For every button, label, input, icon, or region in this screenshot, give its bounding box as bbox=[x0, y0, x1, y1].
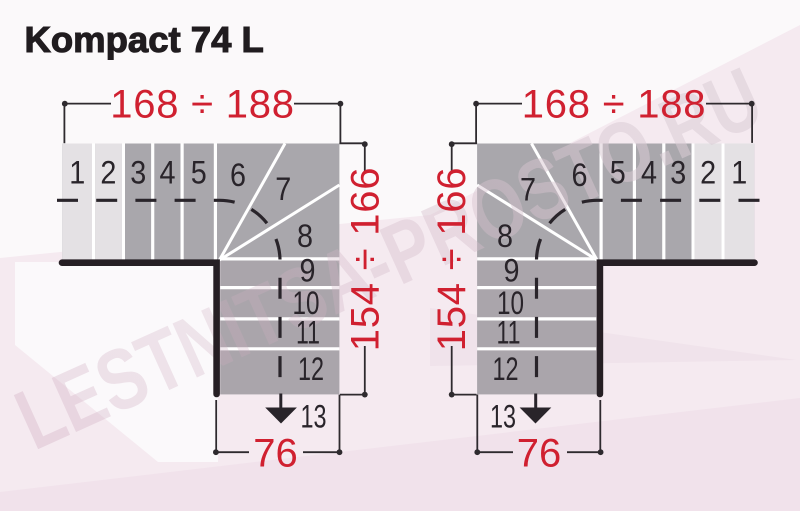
svg-text:13: 13 bbox=[490, 399, 516, 435]
svg-text:12: 12 bbox=[298, 351, 324, 387]
svg-text:12: 12 bbox=[493, 351, 519, 387]
svg-text:8: 8 bbox=[297, 218, 313, 254]
svg-text:2: 2 bbox=[700, 155, 716, 191]
svg-text:7: 7 bbox=[275, 171, 291, 207]
svg-text:1: 1 bbox=[731, 155, 747, 191]
svg-text:6: 6 bbox=[572, 157, 588, 193]
svg-text:9: 9 bbox=[504, 252, 520, 288]
svg-text:7: 7 bbox=[520, 172, 536, 208]
svg-text:154 ÷ 166: 154 ÷ 166 bbox=[344, 167, 388, 351]
svg-text:5: 5 bbox=[191, 155, 207, 191]
svg-text:2: 2 bbox=[100, 155, 116, 191]
svg-text:3: 3 bbox=[670, 155, 686, 191]
svg-text:8: 8 bbox=[497, 218, 513, 254]
svg-text:11: 11 bbox=[497, 315, 521, 351]
svg-text:11: 11 bbox=[296, 315, 320, 351]
svg-text:168 ÷ 188: 168 ÷ 188 bbox=[522, 83, 706, 127]
svg-text:6: 6 bbox=[230, 157, 246, 193]
svg-text:5: 5 bbox=[610, 155, 626, 191]
svg-text:9: 9 bbox=[300, 252, 316, 288]
svg-text:1: 1 bbox=[69, 155, 85, 191]
svg-text:Kompact 74 L: Kompact 74 L bbox=[25, 19, 264, 60]
svg-text:13: 13 bbox=[301, 399, 327, 435]
svg-text:4: 4 bbox=[160, 155, 176, 191]
svg-text:4: 4 bbox=[641, 155, 657, 191]
svg-text:3: 3 bbox=[130, 155, 146, 191]
svg-text:76: 76 bbox=[253, 432, 298, 476]
svg-text:154 ÷ 166: 154 ÷ 166 bbox=[430, 167, 474, 351]
svg-text:168 ÷ 188: 168 ÷ 188 bbox=[110, 83, 294, 127]
svg-text:76: 76 bbox=[517, 432, 562, 476]
